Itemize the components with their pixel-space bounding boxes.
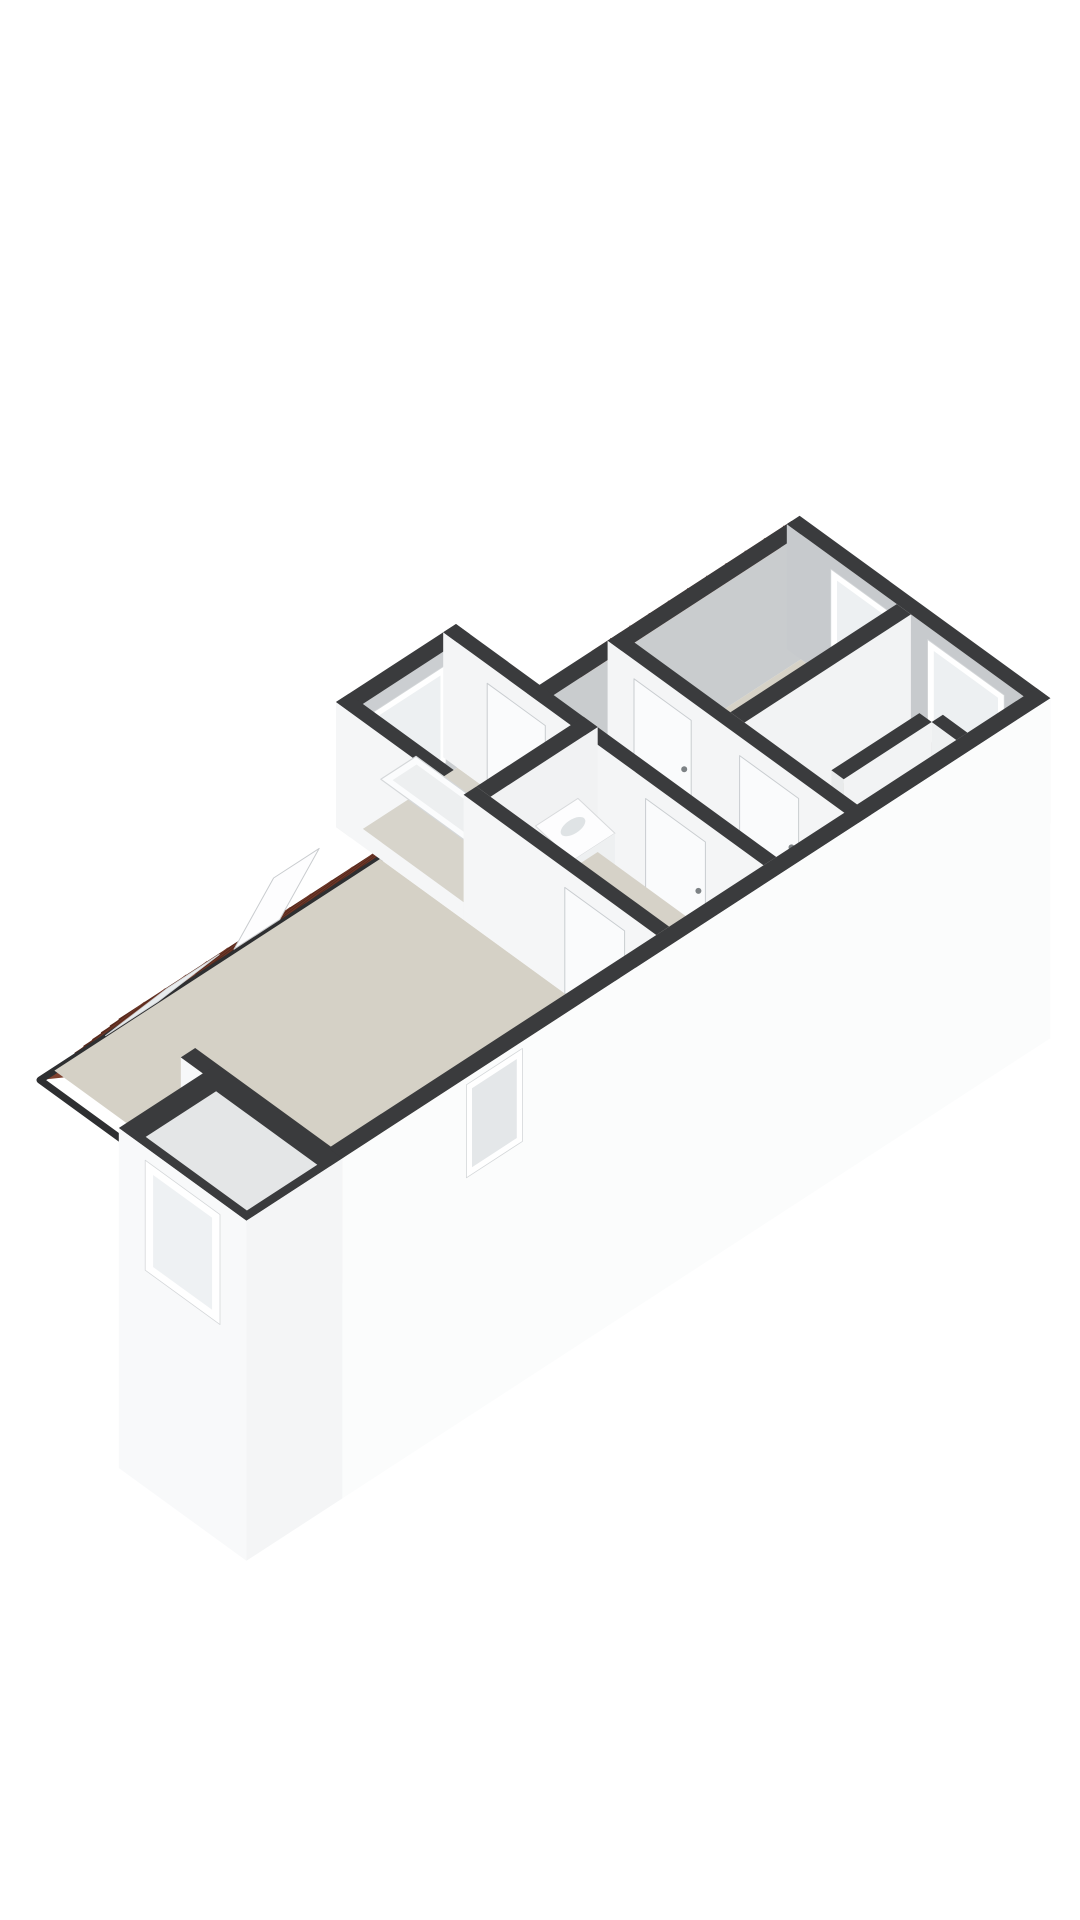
left-bedroom-door-handle: [681, 766, 687, 772]
floorplan-render-stage: [0, 0, 1080, 1920]
dormer-se-face: [246, 1158, 342, 1560]
shower-room-door-handle: [695, 888, 701, 894]
floorplan-3d-drawing: [0, 0, 1080, 1920]
